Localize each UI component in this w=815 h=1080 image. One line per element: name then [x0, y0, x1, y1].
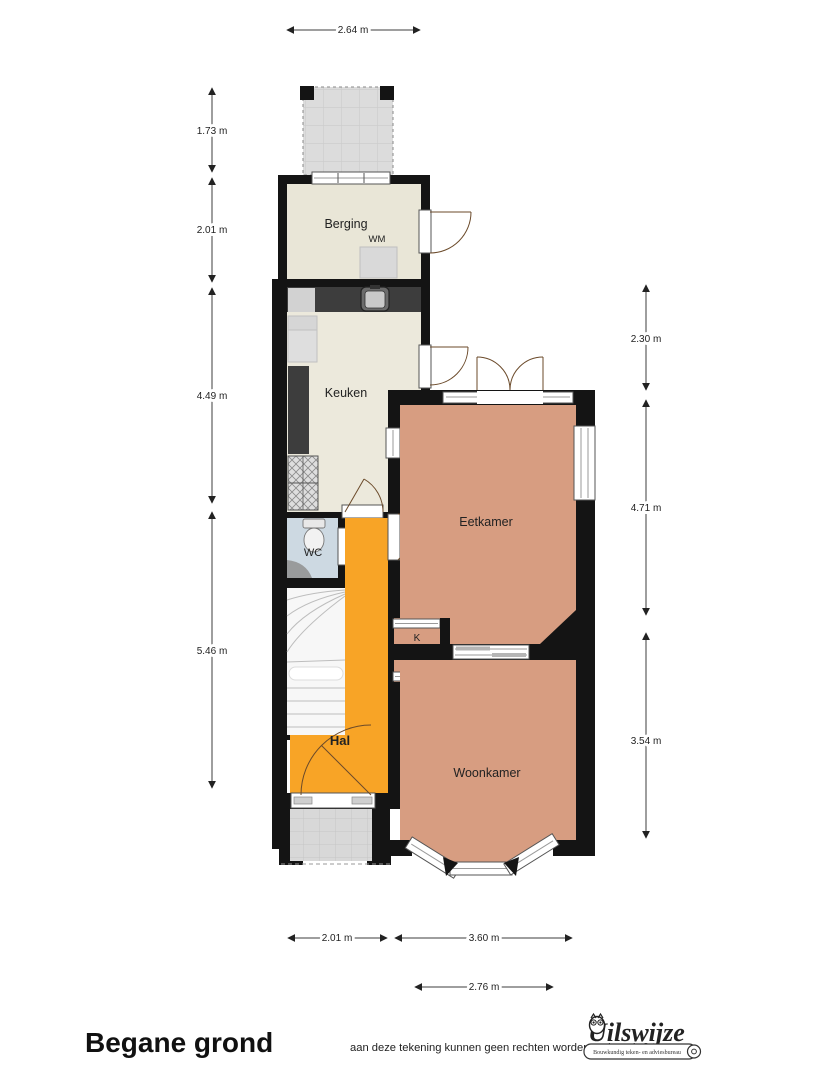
terrace-floor — [303, 87, 393, 175]
dim-left-4: 5.46 m — [197, 646, 228, 657]
dim-right-1: 2.30 m — [631, 334, 662, 345]
berging-floor — [287, 184, 421, 279]
keuken-ext-door-opening — [419, 345, 431, 388]
wc-label: WC — [304, 547, 322, 559]
left-outer-wall — [272, 279, 287, 810]
washing-machine — [360, 247, 397, 278]
floorplan-page: Berging WM — [0, 0, 815, 1080]
logo-tagline: Bouwkundig teken- en adviesbureau — [593, 1050, 681, 1056]
page-title: Begane grond — [85, 1027, 273, 1058]
logo: Uilswijze Bouwkundig teken- en adviesbur… — [584, 1014, 701, 1059]
stair-landing — [289, 667, 343, 680]
dim-left-3: 4.49 m — [197, 391, 228, 402]
kitchen-appliance-top — [288, 288, 315, 312]
front-door-sidelight-left — [294, 797, 312, 804]
dim-bottom-2: 3.60 m — [469, 933, 500, 944]
terrace — [300, 86, 394, 175]
keuken-label: Keuken — [325, 386, 367, 400]
footer: Begane grond aan deze tekening kunnen ge… — [85, 1014, 701, 1059]
wc-bottom-wall — [272, 578, 348, 588]
porch-floor — [290, 809, 372, 861]
eetkamer-label: Eetkamer — [459, 515, 513, 529]
floorplan-canvas: Berging WM — [0, 0, 815, 1080]
logo-ribbon: Bouwkundig teken- en adviesbureau — [584, 1044, 701, 1059]
woonkamer-label: Woonkamer — [453, 766, 520, 780]
room-berging: Berging WM — [278, 172, 471, 285]
terrace-post-right — [380, 86, 394, 100]
kitchen-tall-cabinet — [288, 366, 309, 454]
dim-right-3: 3.54 m — [631, 736, 662, 747]
french-door-arc-left — [477, 357, 510, 390]
kitchen-appliance-left2 — [288, 330, 317, 362]
hal-eetkamer-door-opening — [388, 514, 400, 560]
dim-left-2: 2.01 m — [197, 225, 228, 236]
french-door-arc-right — [510, 357, 543, 390]
dim-bottom-1: 2.01 m — [322, 933, 353, 944]
closet1-label: K — [414, 633, 421, 644]
front-door-sidelight-right — [352, 797, 372, 804]
berging-label: Berging — [324, 217, 367, 231]
room-woonkamer: Woonkamer — [400, 660, 576, 878]
hal-label: Hal — [330, 733, 350, 748]
kitchen-sink — [361, 285, 389, 311]
dim-left-1: 1.73 m — [197, 126, 228, 137]
dim-top: 2.64 m — [338, 25, 369, 36]
eetkamer-right-window — [574, 426, 595, 500]
dim-bottom-3: 2.76 m — [469, 982, 500, 993]
kitchen-stove — [288, 456, 318, 510]
keuken-ext-door-arc — [430, 347, 468, 385]
french-door-opening — [477, 391, 543, 404]
wm-label: WM — [369, 234, 386, 245]
owl-icon — [590, 1014, 605, 1034]
terrace-post-left — [300, 86, 314, 100]
dim-right-2: 4.71 m — [631, 503, 662, 514]
berging-door-arc — [430, 212, 471, 253]
berging-door-opening — [419, 210, 431, 253]
